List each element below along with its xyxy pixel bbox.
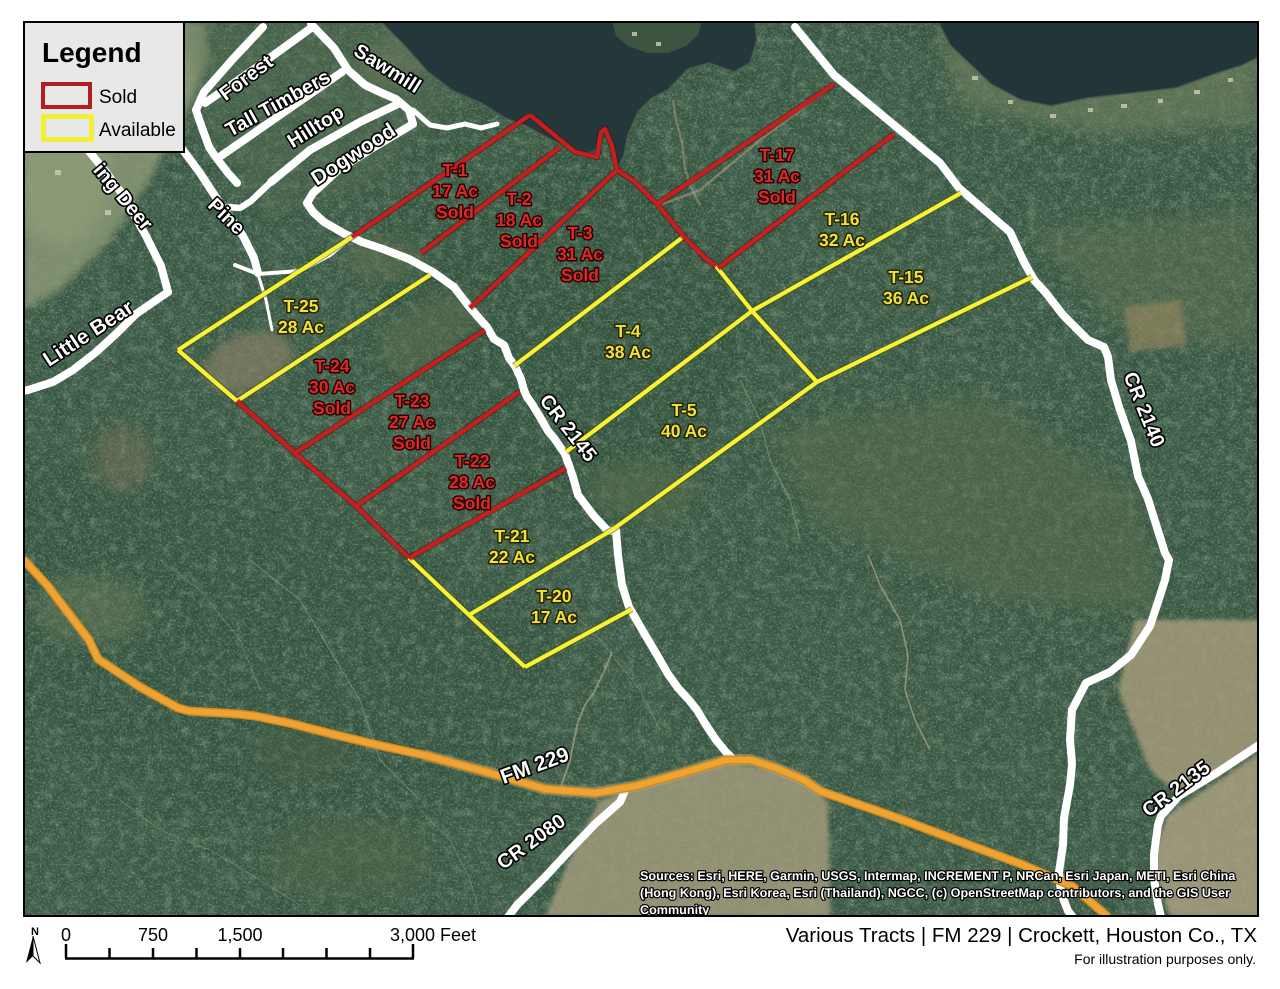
svg-text:Sold: Sold bbox=[561, 265, 599, 285]
svg-text:T-1: T-1 bbox=[442, 160, 468, 180]
svg-text:750: 750 bbox=[138, 925, 168, 945]
svg-text:T-21: T-21 bbox=[494, 526, 529, 546]
svg-text:T-24: T-24 bbox=[314, 356, 349, 376]
svg-text:Sources: Esri, HERE, Garmin, U: Sources: Esri, HERE, Garmin, USGS, Inter… bbox=[640, 869, 1236, 883]
svg-text:28 Ac: 28 Ac bbox=[449, 472, 495, 492]
svg-text:T-16: T-16 bbox=[824, 209, 859, 229]
svg-text:0: 0 bbox=[61, 925, 71, 945]
svg-text:3,000 Feet: 3,000 Feet bbox=[390, 925, 476, 945]
svg-text:Community: Community bbox=[640, 903, 709, 917]
svg-text:32 Ac: 32 Ac bbox=[819, 230, 865, 250]
svg-text:T-20: T-20 bbox=[536, 586, 571, 606]
svg-text:31 Ac: 31 Ac bbox=[557, 244, 603, 264]
svg-text:Sold: Sold bbox=[758, 187, 796, 207]
svg-text:T-5: T-5 bbox=[671, 400, 697, 420]
svg-text:36 Ac: 36 Ac bbox=[883, 288, 929, 308]
svg-text:T-4: T-4 bbox=[615, 321, 641, 341]
svg-text:T-17: T-17 bbox=[759, 145, 794, 165]
svg-text:31 Ac: 31 Ac bbox=[754, 166, 800, 186]
svg-text:T-25: T-25 bbox=[283, 296, 318, 316]
svg-text:Sold: Sold bbox=[393, 433, 431, 453]
svg-text:Sold: Sold bbox=[453, 493, 491, 513]
svg-text:Sold: Sold bbox=[313, 398, 351, 418]
svg-text:40 Ac: 40 Ac bbox=[661, 421, 707, 441]
svg-text:T-22: T-22 bbox=[454, 451, 489, 471]
svg-text:38 Ac: 38 Ac bbox=[605, 342, 651, 362]
svg-text:T-15: T-15 bbox=[888, 267, 923, 287]
svg-text:28 Ac: 28 Ac bbox=[278, 317, 324, 337]
svg-text:18 Ac: 18 Ac bbox=[496, 210, 542, 230]
svg-text:Sold: Sold bbox=[436, 202, 474, 222]
svg-text:T-23: T-23 bbox=[394, 391, 429, 411]
svg-text:N: N bbox=[31, 926, 39, 938]
svg-text:T-3: T-3 bbox=[567, 223, 593, 243]
svg-text:(Hong Kong), Esri Korea, Esri: (Hong Kong), Esri Korea, Esri (Thailand)… bbox=[640, 886, 1230, 900]
svg-text:27 Ac: 27 Ac bbox=[389, 412, 435, 432]
svg-text:30 Ac: 30 Ac bbox=[309, 377, 355, 397]
svg-text:T-2: T-2 bbox=[506, 189, 532, 209]
svg-text:17 Ac: 17 Ac bbox=[531, 607, 577, 627]
svg-text:1,500: 1,500 bbox=[217, 925, 262, 945]
svg-text:Sold: Sold bbox=[500, 231, 538, 251]
svg-text:22 Ac: 22 Ac bbox=[489, 547, 535, 567]
svg-text:17 Ac: 17 Ac bbox=[432, 181, 478, 201]
